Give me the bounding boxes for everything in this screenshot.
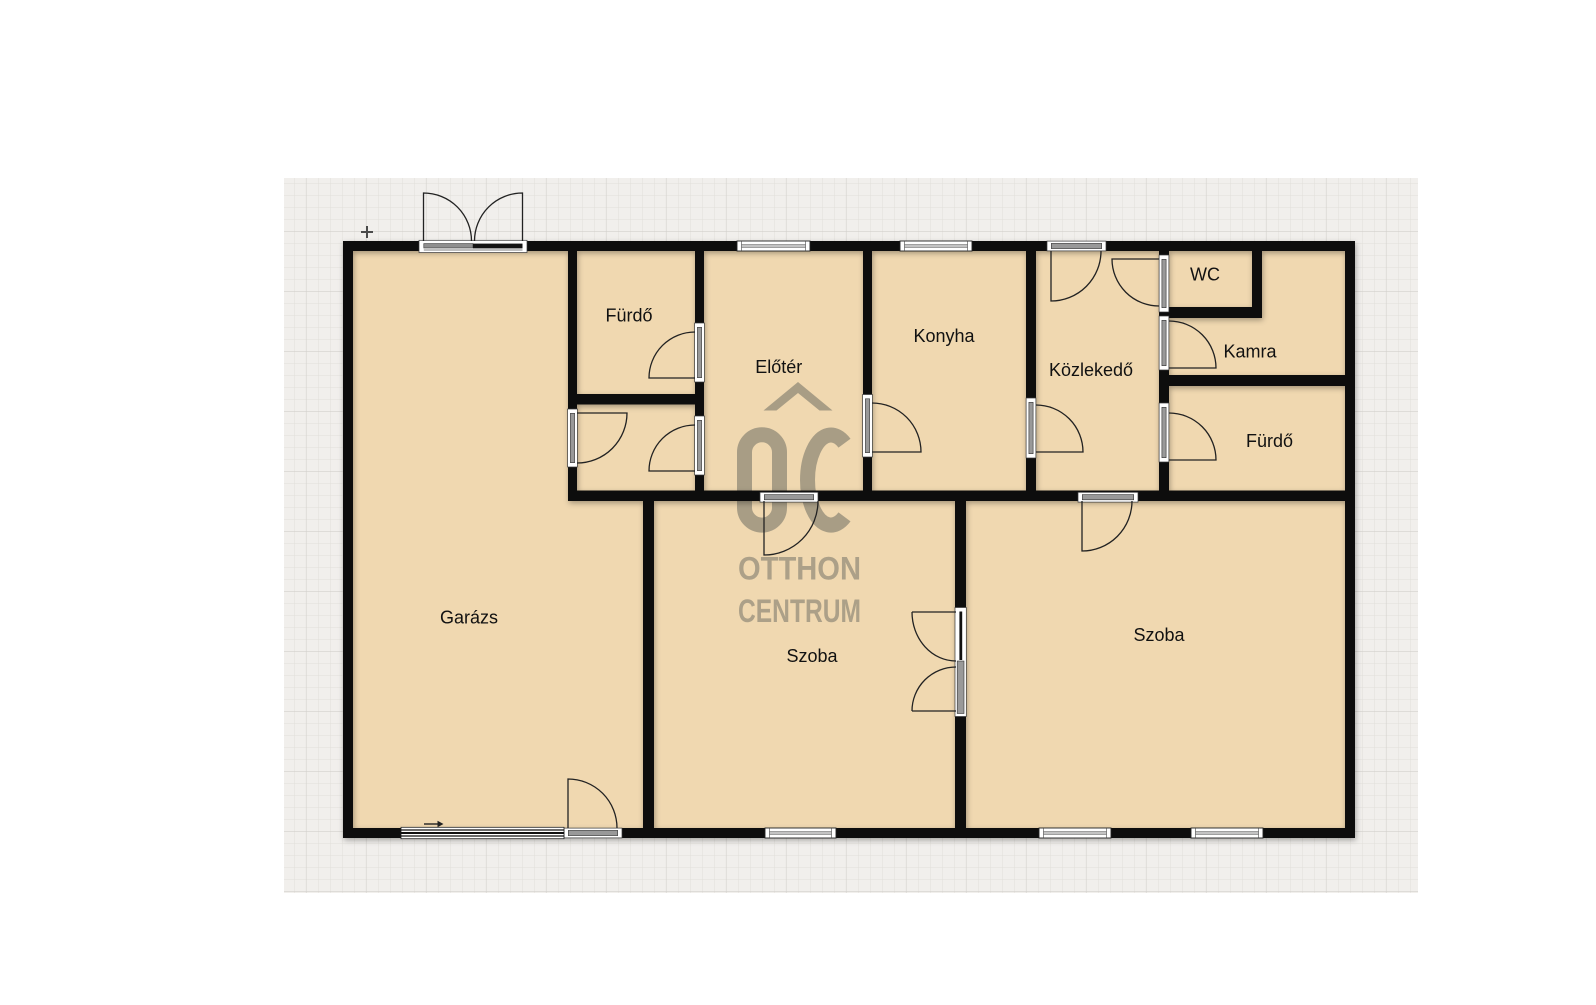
svg-text:Előtér: Előtér [755, 357, 802, 377]
svg-text:Szoba: Szoba [1133, 625, 1185, 645]
svg-text:Fürdő: Fürdő [605, 306, 652, 326]
svg-text:WC: WC [1190, 264, 1220, 284]
svg-text:Szoba: Szoba [786, 646, 838, 666]
svg-text:Garázs: Garázs [440, 608, 498, 628]
svg-text:Kamra: Kamra [1223, 341, 1277, 361]
svg-text:Konyha: Konyha [913, 326, 975, 346]
svg-text:OTTHON: OTTHON [738, 551, 861, 587]
svg-text:CENTRUM: CENTRUM [738, 593, 861, 629]
svg-text:Közlekedő: Közlekedő [1049, 360, 1133, 380]
svg-text:Fürdő: Fürdő [1246, 431, 1293, 451]
